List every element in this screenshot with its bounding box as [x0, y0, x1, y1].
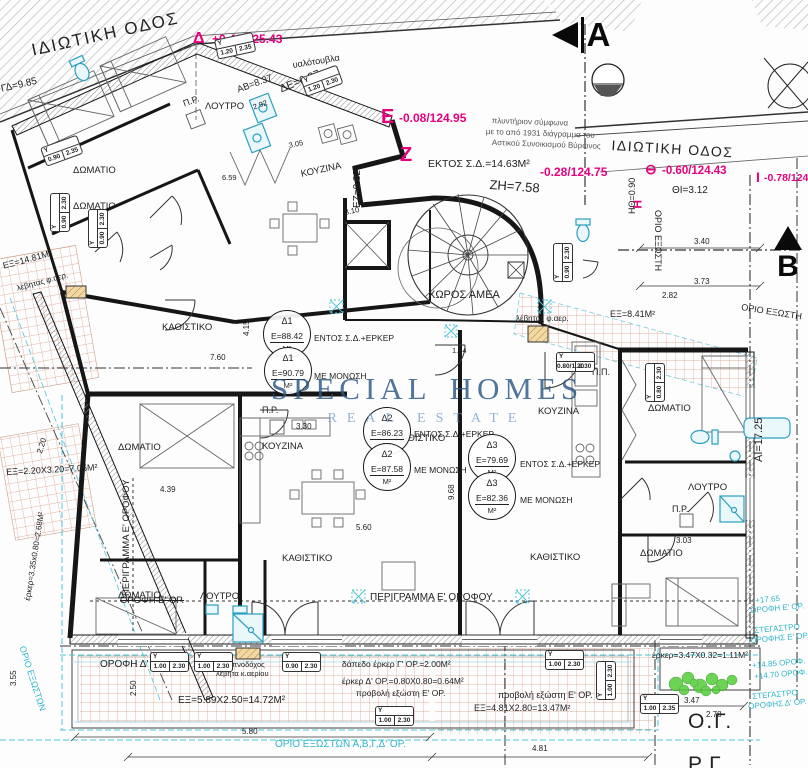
area-erker4: δάπεδο έρκερ Γ' ΟΡ.=2.00Μ² [342, 660, 451, 669]
survey-point-theta-icon: ⊖ [645, 162, 657, 177]
survey-point-theta-value: -0.60/124.43 [662, 165, 727, 178]
area-ex3: ΕΞ=8.41Μ² [610, 310, 655, 320]
apartment-note: ΕΝΤΟΣ Σ.Δ.+ΕΡΚΕΡ [520, 460, 600, 469]
section-marker-b: B [774, 226, 802, 284]
room-kitchen: ΚΟΥΖΙΝΑ [538, 407, 579, 417]
door-tag: Υ 1.002.30 [194, 652, 233, 672]
section-letter-b: B [777, 250, 799, 284]
apartment-note: ΜΕ ΜΟΝΩΣΗ [414, 466, 467, 475]
survey-point-epsilon-icon: Ε [381, 106, 394, 128]
area-ex5: ΕΞ=4.81Χ2.80=13.47Μ² [474, 704, 570, 714]
dimension: 3.03 [676, 537, 692, 546]
edge-thi: ΘΙ=3.12 [672, 185, 708, 196]
room-kitchen: ΚΟΥΖΙΝΑ [262, 442, 303, 452]
street-line-rg: Ρ.Γ. [688, 753, 728, 768]
area-ex4: ΕΞ=5.89Χ2.50=14.72Μ² [178, 695, 285, 706]
room-living: ΚΑΘΙΣΤΙΚΟ [282, 554, 332, 564]
door-tag: Υ 0.902.30 [553, 243, 573, 282]
apartment-note: ΜΕ ΜΟΝΩΣΗ [314, 372, 367, 381]
elevator-shaft [345, 222, 389, 268]
dimension: 2.50 [130, 680, 139, 696]
edge-hth: ΗΘ=0.90 [628, 178, 638, 214]
apartment-stamp-d2-insulated: Δ2 Ε=87.58 Μ² [363, 443, 411, 491]
apartment-stamp-d3-insulated: Δ3 Ε=82.36 Μ² [468, 472, 516, 520]
section-line-icon [581, 17, 584, 53]
apartment-note: ΕΝΤΟΣ Σ.Δ.+ΕΡΚΕΡ [314, 334, 394, 343]
dimension: 3.30 [296, 423, 312, 432]
door-tag: Υ 0.80/1.202.30 [556, 352, 595, 372]
area-erker1: έρκερ=3.47Χ0.32=1.11Μ² [652, 651, 748, 660]
edge-ez: ΕΖ=0.82 [352, 170, 363, 208]
section-arrow-left-icon [552, 22, 578, 48]
door-tag: Υ 0.902.30 [282, 652, 321, 672]
room-bedroom: ΔΩΜΑΤΙΟ [73, 166, 116, 176]
dimension: 6.59 [222, 174, 237, 182]
section-arrow-up-icon [774, 226, 802, 250]
outline-roof-e: ΟΡΟΦΗ Ε' ΟΡ. [120, 596, 184, 606]
dimension: 7.60 [210, 354, 226, 363]
area-erker2: έρκερ Δ' ΟΡ.=0.80Χ0.80=0.64Μ² [342, 677, 464, 686]
room-bath: ΛΟΥΤΡΟ [688, 483, 727, 493]
outline-balcony-limit-abgd: ΟΡΙΟ ΕΞΩΣΤΩΝ Α,Β,Γ,Δ' ΟΡ. [275, 739, 406, 750]
dimension: 4.15 [243, 320, 252, 336]
door-tag: Υ 0.902.30 [88, 209, 108, 248]
survey-symbols [592, 58, 808, 110]
room-living: ΚΑΘΙΣΤΙΚΟ [162, 323, 212, 333]
dimension: 4.81 [532, 745, 548, 754]
outline-perigramma-vertical: ΠΕΡΙΓΡΑΜΜΑ Ε' ΟΡΟΦΟΥ [122, 479, 132, 596]
note-boiler: λέβητας φ.αερ. [516, 315, 569, 324]
survey-point-iota-icon: Ι [756, 170, 760, 185]
outline-balcony-projection: προβολή εξώστη Ε' ΟΡ. [356, 689, 445, 698]
section-marker-a: A [552, 16, 610, 54]
dimension: 3.55 [10, 670, 19, 686]
apartment-note: ΜΕ ΜΟΝΩΣΗ [520, 496, 573, 505]
section-letter-a: A [587, 16, 611, 54]
outline-perigramma-horizontal: ΠΕΡΙΓΡΑΜΜΑ Ε' ΟΡΟΦΟΥ [370, 592, 493, 603]
dimension: 3.40 [694, 238, 710, 247]
door-tag: Υ 1.002.35 [640, 694, 679, 714]
room-bath: ΛΟΥΤΡΟ [200, 592, 239, 602]
dimension: 3.73 [694, 278, 710, 287]
door-tag: Υ 0.802.30 [645, 363, 665, 402]
door-tag: Υ 1.002.30 [375, 706, 414, 726]
door-tag: Υ 1.002.30 [150, 652, 189, 672]
dimension: 5.60 [356, 524, 372, 533]
dimension: 1.54 [452, 347, 467, 355]
room-bedroom: ΔΩΜΑΤΙΟ [118, 443, 161, 453]
dimension: 2.78 [706, 711, 722, 720]
room-living: ΚΑΘΙΣΤΙΚΟ [530, 553, 580, 563]
room-bedroom: ΔΩΜΑΤΙΟ [648, 404, 691, 414]
dimension: 9.68 [448, 484, 457, 500]
dimension: 3.47 [684, 697, 700, 706]
survey-point-delta-icon: Δ [193, 30, 205, 48]
area-ektos: ΕΚΤΟΣ Σ.Δ.=14.63Μ² [428, 159, 530, 171]
edge-ai: ΑΙ=17.25 [753, 418, 765, 462]
outline-balcony-projection: προβολή εξώστη Ε' ΟΡ. [498, 691, 593, 701]
survey-point-zeta-icon: Ζ [400, 144, 412, 166]
room-pr: Π.Ρ. [672, 505, 688, 515]
door-tag: Υ 0.902.30 [50, 193, 70, 232]
door-tag: Υ 1.002.30 [596, 661, 616, 700]
dimension: 5.80 [242, 728, 258, 737]
floor-plan-sheet: ΙΔΙΩΤΙΚΗ ΟΔΟΣ ΙΔΙΩΤΙΚΗ ΟΔΟΣ Δ +0.40/125.… [0, 0, 808, 768]
room-pr: Π.Ρ. [262, 406, 278, 416]
room-bedroom: ΔΩΜΑΤΙΟ [640, 549, 683, 559]
room-amea: ΧΩΡΟΣ ΑΜΕΑ [428, 289, 500, 301]
dimension: 2.82 [662, 292, 678, 301]
apartment-stamp-d1-insulated: Δ1 Ε=90.79 Μ² [264, 347, 312, 395]
survey-point-epsilon-value: -0.08/124.95 [399, 112, 466, 125]
survey-point-iota-value: -0.78/124.2 [764, 173, 808, 185]
survey-elevation-mid: -0.28/124.75 [540, 166, 607, 179]
outline-balcony-limit-vertical: ΟΡΙΟ ΕΞΩΣΤΗ [652, 210, 662, 271]
dimension: 4.39 [160, 486, 176, 495]
door-tag: Υ 1.002.30 [545, 650, 584, 670]
plants [669, 672, 737, 696]
room-bath: ΛΟΥΤΡΟ [205, 102, 244, 112]
